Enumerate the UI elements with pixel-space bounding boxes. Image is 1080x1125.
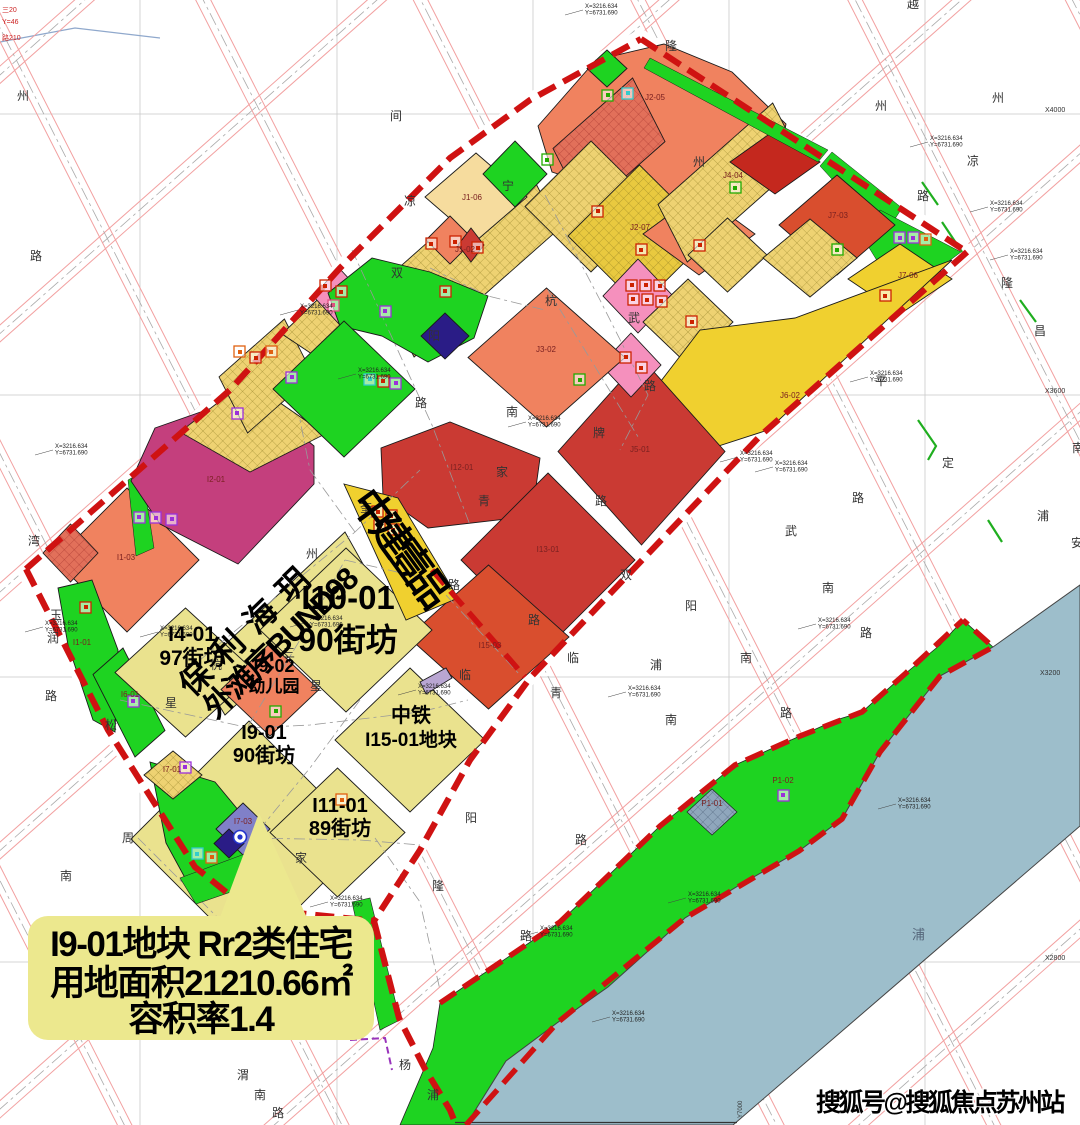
- svg-text:I7-03: I7-03: [234, 817, 253, 826]
- svg-text:中铁: 中铁: [391, 703, 431, 727]
- svg-text:X=3216.634: X=3216.634: [300, 304, 333, 310]
- svg-text:松: 松: [105, 718, 117, 732]
- svg-text:I15-01地块: I15-01地块: [365, 728, 458, 751]
- svg-text:Y=6731.690: Y=6731.690: [930, 143, 963, 149]
- svg-text:Y=6731.690: Y=6731.690: [990, 208, 1023, 214]
- svg-text:X=3216.634: X=3216.634: [688, 892, 721, 898]
- svg-text:X=3216.634: X=3216.634: [612, 1011, 645, 1017]
- svg-text:南: 南: [60, 868, 72, 883]
- svg-text:Y=6731.690: Y=6731.690: [330, 903, 363, 909]
- svg-text:浦: 浦: [650, 658, 662, 672]
- svg-text:路: 路: [860, 625, 872, 640]
- svg-text:X=3216.634: X=3216.634: [775, 461, 808, 467]
- svg-text:路: 路: [852, 490, 864, 505]
- svg-text:路: 路: [272, 1105, 284, 1120]
- svg-text:双: 双: [620, 568, 632, 582]
- svg-text:X=3216.634: X=3216.634: [358, 368, 391, 374]
- svg-text:Y=6731.690: Y=6731.690: [585, 11, 618, 17]
- svg-text:J1-06: J1-06: [462, 193, 483, 202]
- svg-text:Y=6731.690: Y=6731.690: [870, 378, 903, 384]
- svg-text:州: 州: [17, 89, 29, 103]
- svg-text:Y=6731.690: Y=6731.690: [818, 625, 851, 631]
- svg-text:浦: 浦: [427, 1088, 439, 1102]
- svg-text:路: 路: [528, 612, 540, 627]
- svg-text:南: 南: [665, 712, 677, 727]
- svg-text:阳: 阳: [428, 329, 440, 343]
- svg-text:Y=6731.690: Y=6731.690: [300, 311, 333, 317]
- svg-text:X=3216.634: X=3216.634: [898, 798, 931, 804]
- svg-text:90街坊: 90街坊: [233, 743, 295, 767]
- svg-text:Y=6731.690: Y=6731.690: [688, 899, 721, 905]
- svg-text:浦: 浦: [912, 927, 925, 942]
- svg-text:杨: 杨: [399, 1057, 411, 1072]
- svg-text:90街坊: 90街坊: [298, 622, 398, 658]
- svg-text:I2-01: I2-01: [207, 475, 226, 484]
- svg-text:Y=6731.690: Y=6731.690: [540, 933, 573, 939]
- svg-text:路: 路: [917, 188, 929, 203]
- svg-text:Y=6731.690: Y=6731.690: [45, 628, 78, 634]
- svg-text:Y7000: Y7000: [738, 1100, 744, 1118]
- svg-text:玉: 玉: [50, 608, 62, 622]
- svg-text:Y=46: Y=46: [2, 19, 19, 26]
- svg-text:Y=6731.690: Y=6731.690: [55, 451, 88, 457]
- svg-text:临: 临: [567, 651, 579, 665]
- svg-text:I13-01: I13-01: [537, 545, 560, 554]
- svg-text:浦: 浦: [1037, 509, 1049, 523]
- svg-text:I1-01: I1-01: [73, 638, 92, 647]
- svg-text:凉: 凉: [404, 193, 416, 208]
- svg-text:宁: 宁: [502, 178, 514, 193]
- svg-text:I9-02: I9-02: [253, 656, 294, 676]
- svg-text:Y=6731.690: Y=6731.690: [612, 1018, 645, 1024]
- svg-text:X=3216.634: X=3216.634: [55, 444, 88, 450]
- svg-text:Y=6731.690: Y=6731.690: [358, 375, 391, 381]
- svg-text:97街坊: 97街坊: [159, 646, 224, 670]
- svg-text:X2800: X2800: [1045, 955, 1065, 962]
- svg-text:X=3216.634: X=3216.634: [930, 136, 963, 142]
- svg-text:间: 间: [390, 109, 402, 123]
- svg-text:越: 越: [907, 0, 919, 11]
- svg-text:89街坊: 89街坊: [309, 816, 371, 840]
- svg-text:武: 武: [785, 524, 797, 538]
- svg-text:I11-01: I11-01: [312, 795, 368, 817]
- svg-text:路: 路: [575, 832, 587, 847]
- svg-text:J7-06: J7-06: [898, 271, 919, 280]
- svg-text:南: 南: [506, 404, 518, 419]
- svg-text:牌: 牌: [593, 426, 605, 440]
- svg-text:家: 家: [295, 850, 307, 865]
- svg-text:州: 州: [875, 99, 887, 113]
- svg-text:周: 周: [122, 831, 134, 845]
- svg-text:P1-02: P1-02: [772, 776, 794, 785]
- svg-text:P1-01: P1-01: [701, 799, 723, 808]
- svg-text:阳: 阳: [685, 599, 697, 613]
- svg-text:X4000: X4000: [1045, 107, 1065, 114]
- svg-text:路: 路: [30, 248, 42, 263]
- svg-text:路: 路: [45, 688, 57, 703]
- svg-text:I15-03: I15-03: [479, 641, 502, 650]
- svg-text:州: 州: [992, 91, 1004, 105]
- svg-text:路210: 路210: [2, 33, 21, 42]
- svg-text:X=3216.634: X=3216.634: [540, 926, 573, 932]
- svg-text:Y=6731.690: Y=6731.690: [528, 423, 561, 429]
- svg-text:X=3216.634: X=3216.634: [740, 451, 773, 457]
- svg-text:I1-03: I1-03: [117, 553, 136, 562]
- svg-text:J2-05: J2-05: [645, 93, 666, 102]
- svg-text:X=3216.634: X=3216.634: [818, 618, 851, 624]
- svg-text:J6-02: J6-02: [780, 391, 801, 400]
- svg-text:I9-01: I9-01: [241, 722, 287, 744]
- svg-text:昌: 昌: [1034, 324, 1046, 338]
- svg-text:J1-02: J1-02: [455, 245, 476, 254]
- svg-text:隆: 隆: [665, 38, 677, 53]
- svg-text:X3200: X3200: [1040, 670, 1060, 677]
- svg-text:路: 路: [644, 378, 656, 393]
- svg-text:I10-01: I10-01: [301, 579, 395, 616]
- svg-text:J4-04: J4-04: [723, 171, 744, 180]
- svg-text:搜狐号@搜狐焦点苏州站: 搜狐号@搜狐焦点苏州站: [816, 1088, 1065, 1117]
- svg-text:隆: 隆: [432, 878, 444, 893]
- svg-text:Y=6731.690: Y=6731.690: [898, 805, 931, 811]
- svg-text:Y=6731.690: Y=6731.690: [775, 468, 808, 474]
- svg-text:三20: 三20: [2, 6, 17, 14]
- svg-text:杭: 杭: [545, 293, 557, 308]
- svg-text:双: 双: [391, 266, 403, 280]
- svg-text:I6-01: I6-01: [121, 690, 140, 699]
- svg-text:渭: 渭: [237, 1068, 249, 1082]
- svg-text:湾: 湾: [28, 533, 40, 548]
- svg-text:I12-01: I12-01: [451, 463, 474, 472]
- svg-text:南: 南: [822, 580, 834, 595]
- svg-text:Y=6731.690: Y=6731.690: [1010, 256, 1043, 262]
- svg-text:凉: 凉: [967, 153, 979, 168]
- svg-text:X=3216.634: X=3216.634: [628, 686, 661, 692]
- svg-text:临: 临: [459, 668, 471, 682]
- svg-text:I9-01地块 Rr2类住宅: I9-01地块 Rr2类住宅: [50, 924, 352, 964]
- svg-text:青: 青: [478, 494, 490, 508]
- svg-text:隆: 隆: [1001, 275, 1013, 290]
- svg-text:路: 路: [780, 705, 792, 720]
- svg-text:X=3216.634: X=3216.634: [585, 4, 618, 10]
- svg-text:星: 星: [310, 679, 322, 693]
- svg-text:南: 南: [740, 650, 752, 665]
- svg-text:I4-01: I4-01: [168, 623, 216, 646]
- svg-text:南: 南: [1072, 440, 1080, 455]
- svg-text:路: 路: [415, 395, 427, 410]
- svg-text:X=3216.634: X=3216.634: [1010, 249, 1043, 255]
- svg-text:星: 星: [165, 696, 177, 710]
- svg-text:州: 州: [693, 155, 705, 169]
- svg-text:X=3216.634: X=3216.634: [990, 201, 1023, 207]
- svg-text:J3-02: J3-02: [536, 345, 557, 354]
- svg-text:武: 武: [628, 311, 640, 325]
- svg-text:青: 青: [550, 686, 562, 700]
- svg-text:I7-01: I7-01: [163, 765, 182, 774]
- svg-text:X=3216.634: X=3216.634: [528, 416, 561, 422]
- svg-text:J5-01: J5-01: [630, 445, 651, 454]
- svg-text:阳: 阳: [465, 811, 477, 825]
- svg-text:定: 定: [942, 455, 954, 470]
- svg-text:Y=6731.690: Y=6731.690: [418, 691, 451, 697]
- svg-text:X=3216.634: X=3216.634: [45, 621, 78, 627]
- svg-text:X=3216.634: X=3216.634: [330, 896, 363, 902]
- svg-text:路: 路: [595, 493, 607, 508]
- svg-text:用地面积21210.66㎡: 用地面积21210.66㎡: [50, 963, 353, 1003]
- svg-text:南: 南: [254, 1087, 266, 1102]
- svg-text:容积率1.4: 容积率1.4: [129, 1000, 276, 1039]
- svg-text:安: 安: [1071, 535, 1080, 550]
- svg-text:X3600: X3600: [1045, 388, 1065, 395]
- svg-text:Y=6731.690: Y=6731.690: [740, 458, 773, 464]
- svg-text:J2-07: J2-07: [630, 223, 651, 232]
- svg-text:X=3216.634: X=3216.634: [418, 684, 451, 690]
- svg-text:Y=6731.690: Y=6731.690: [628, 693, 661, 699]
- svg-text:X=3216.634: X=3216.634: [870, 371, 903, 377]
- svg-text:幼儿园: 幼儿园: [249, 676, 300, 696]
- svg-text:家: 家: [496, 464, 508, 479]
- svg-text:J7-03: J7-03: [828, 211, 849, 220]
